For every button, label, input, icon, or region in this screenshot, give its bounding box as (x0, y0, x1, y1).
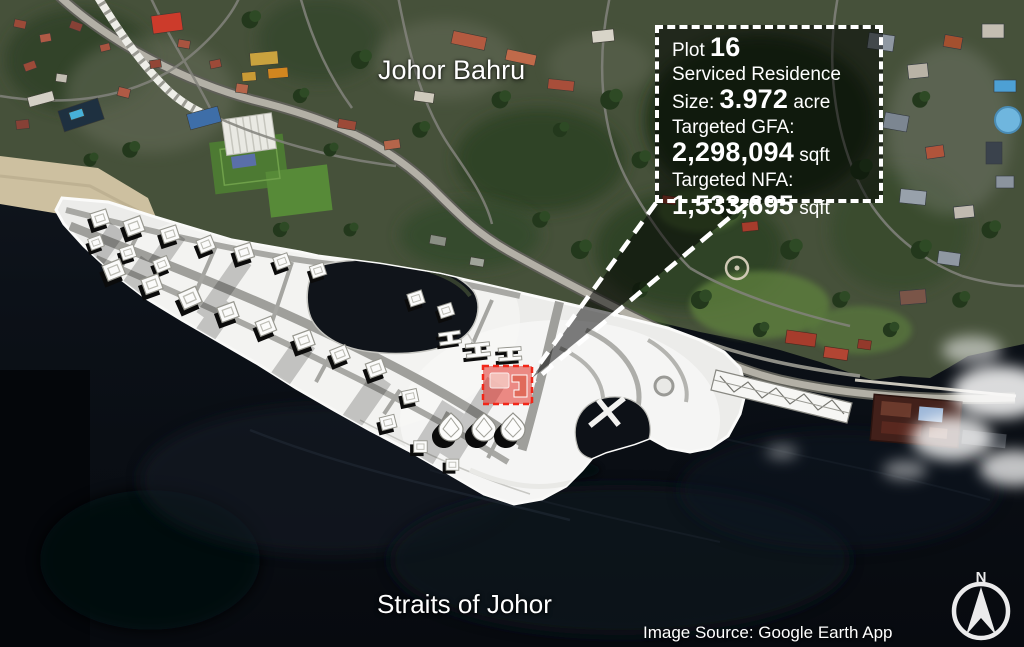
city-label: Johor Bahru (378, 55, 525, 86)
size-unit: acre (788, 92, 830, 113)
plot-number: 16 (710, 32, 740, 62)
water-body-label: Straits of Johor (377, 589, 552, 620)
plot-use-type: Serviced Residence (672, 64, 867, 86)
gfa-value-line: 2,298,094 sqft (672, 139, 867, 170)
plot-size-line: Size: 3.972 acre (672, 86, 867, 117)
gfa-value: 2,298,094 (672, 137, 794, 167)
plot-label: Plot (672, 40, 710, 61)
gfa-unit: sqft (794, 145, 830, 166)
satellite-map-view: N Johor Bahru Straits of Johor Image Sou… (0, 0, 1024, 647)
plot-info-callout: Plot 16 Serviced Residence Size: 3.972 a… (655, 25, 883, 203)
nfa-value: 1,533,695 (672, 190, 794, 220)
callout-plot-line: Plot 16 (672, 34, 867, 64)
image-source-credit: Image Source: Google Earth App (643, 623, 893, 643)
highlighted-plot (483, 366, 532, 404)
size-value: 3.972 (720, 84, 789, 114)
size-label: Size: (672, 92, 720, 113)
nfa-unit: sqft (794, 198, 830, 219)
nfa-label: Targeted NFA: (672, 170, 867, 192)
nfa-value-line: 1,533,695 sqft (672, 192, 867, 223)
gfa-label: Targeted GFA: (672, 117, 867, 139)
